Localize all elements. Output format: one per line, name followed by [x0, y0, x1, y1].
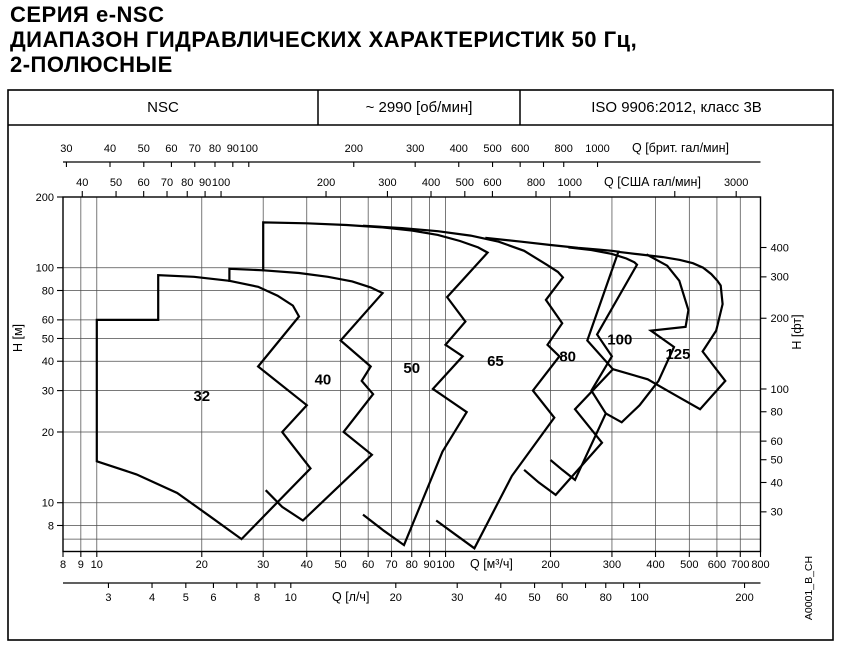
tick-label-usa-gpm: 800: [527, 177, 545, 189]
header-standard: ISO 9906:2012, класс 3В: [520, 90, 833, 125]
tick-label-imp-gpm: 80: [209, 143, 221, 155]
tick-label-ls: 30: [451, 592, 463, 604]
tick-label-imp-gpm: 600: [511, 143, 529, 155]
tick-label-h-ft: 60: [771, 436, 783, 448]
tick-label-usa-gpm: 40: [76, 177, 88, 189]
tick-label-usa-gpm: 1000: [558, 177, 582, 189]
axis-title-ls: Q [л/ч]: [332, 590, 369, 604]
tick-label-m3h: 200: [541, 559, 559, 571]
size-label-100: 100: [607, 331, 632, 348]
tick-label-imp-gpm: 300: [406, 143, 424, 155]
tick-label-m3h: 9: [78, 559, 84, 571]
tick-label-ls: 10: [285, 592, 297, 604]
header-series: NSC: [8, 90, 318, 125]
tick-label-h-ft: 300: [771, 272, 789, 284]
tick-label-imp-gpm: 100: [240, 143, 258, 155]
envelope-65: [363, 226, 563, 549]
tick-label-m3h: 70: [385, 559, 397, 571]
tick-label-imp-gpm: 50: [138, 143, 150, 155]
tick-label-usa-gpm: 50: [110, 177, 122, 189]
tick-label-m3h: 60: [362, 559, 374, 571]
tick-label-ls: 60: [556, 592, 568, 604]
tick-label-h-m: 10: [42, 498, 54, 510]
size-label-40: 40: [315, 371, 332, 388]
tick-label-imp-gpm: 500: [483, 143, 501, 155]
tick-label-imp-gpm: 90: [227, 143, 239, 155]
tick-label-ls: 4: [149, 592, 155, 604]
tick-label-ls: 40: [495, 592, 507, 604]
tick-label-imp-gpm: 70: [189, 143, 201, 155]
tick-label-ls: 20: [390, 592, 402, 604]
tick-label-ls: 80: [600, 592, 612, 604]
tick-label-usa-gpm: 500: [456, 177, 474, 189]
tick-label-usa-gpm: 200: [317, 177, 335, 189]
tick-label-h-ft: 100: [771, 384, 789, 396]
tick-label-m3h: 50: [334, 559, 346, 571]
tick-label-m3h: 10: [91, 559, 103, 571]
tick-label-imp-gpm: 800: [555, 143, 573, 155]
tick-label-ls: 200: [735, 592, 753, 604]
tick-label-m3h: 700: [731, 559, 749, 571]
tick-label-usa-gpm: 70: [161, 177, 173, 189]
tick-label-h-m: 40: [42, 356, 54, 368]
tick-label-ls: 5: [183, 592, 189, 604]
size-label-125: 125: [665, 346, 690, 363]
tick-label-imp-gpm: 1000: [585, 143, 609, 155]
envelope-40: [229, 269, 382, 521]
tick-label-ls: 3: [105, 592, 111, 604]
axis-title-h-ft: H [фт]: [790, 314, 804, 349]
size-label-65: 65: [487, 353, 504, 370]
envelope-32: [97, 275, 311, 539]
tick-label-m3h: 20: [196, 559, 208, 571]
tick-label-h-ft: 200: [771, 313, 789, 325]
envelope-50: [263, 222, 487, 545]
tick-label-usa-gpm: 100: [212, 177, 230, 189]
axis-title-m3h: Q [м³/ч]: [470, 557, 513, 571]
tick-label-imp-gpm: 40: [104, 143, 116, 155]
page-title: СЕРИЯ e-NSC ДИАПАЗОН ГИДРАВЛИЧЕСКИХ ХАРА…: [10, 2, 637, 77]
tick-label-h-m: 100: [36, 263, 54, 275]
tick-label-m3h: 600: [708, 559, 726, 571]
tick-label-h-ft: 30: [771, 507, 783, 519]
tick-label-imp-gpm: 400: [450, 143, 468, 155]
tick-label-usa-gpm: 400: [422, 177, 440, 189]
tick-label-h-ft: 80: [771, 407, 783, 419]
axis-title-usa-gpm: Q [США гал/мин]: [604, 175, 701, 189]
tick-label-ls: 100: [630, 592, 648, 604]
tick-label-h-m: 200: [36, 192, 54, 204]
tick-label-h-m: 60: [42, 315, 54, 327]
title-line-2: ДИАПАЗОН ГИДРАВЛИЧЕСКИХ ХАРАКТЕРИСТИК 50…: [10, 27, 637, 52]
tick-label-usa-gpm: 300: [378, 177, 396, 189]
tick-label-m3h: 90: [423, 559, 435, 571]
tick-label-usa-gpm: 600: [483, 177, 501, 189]
header-speed: ~ 2990 [об/мин]: [318, 90, 520, 125]
tick-label-m3h: 300: [603, 559, 621, 571]
tick-label-imp-gpm: 200: [345, 143, 363, 155]
tick-label-ls: 50: [528, 592, 540, 604]
tick-label-m3h: 100: [436, 559, 454, 571]
tick-label-h-ft: 40: [771, 477, 783, 489]
outer-frame: [8, 90, 833, 640]
size-label-32: 32: [193, 388, 210, 405]
tick-label-usa-gpm: 60: [138, 177, 150, 189]
tick-label-h-m: 20: [42, 427, 54, 439]
tick-label-usa-gpm: 3000: [724, 177, 748, 189]
tick-label-h-ft: 50: [771, 455, 783, 467]
size-label-80: 80: [559, 348, 576, 365]
tick-label-usa-gpm: 80: [181, 177, 193, 189]
tick-label-m3h: 40: [301, 559, 313, 571]
tick-label-h-m: 50: [42, 333, 54, 345]
tick-label-h-m: 80: [42, 285, 54, 297]
watermark: A0001_B_CH: [803, 556, 815, 620]
tick-label-m3h: 80: [406, 559, 418, 571]
axis-title-h-m: H [м]: [11, 324, 25, 352]
tick-label-h-m: 30: [42, 385, 54, 397]
size-label-50: 50: [403, 360, 420, 377]
tick-label-ls: 6: [210, 592, 216, 604]
title-line-3: 2-ПОЛЮСНЫЕ: [10, 52, 637, 77]
tick-label-m3h: 400: [646, 559, 664, 571]
tick-label-ls: 8: [254, 592, 260, 604]
tick-label-m3h: 8: [60, 559, 66, 571]
tick-label-m3h: 800: [751, 559, 769, 571]
tick-label-imp-gpm: 30: [60, 143, 72, 155]
tick-label-m3h: 500: [680, 559, 698, 571]
tick-label-m3h: 30: [257, 559, 269, 571]
tick-label-imp-gpm: 60: [165, 143, 177, 155]
page: СЕРИЯ e-NSC ДИАПАЗОН ГИДРАВЛИЧЕСКИХ ХАРА…: [0, 0, 841, 648]
tick-label-h-ft: 400: [771, 242, 789, 254]
tick-label-usa-gpm: 90: [199, 177, 211, 189]
tick-label-h-m: 8: [48, 520, 54, 532]
title-line-1: СЕРИЯ e-NSC: [10, 2, 637, 27]
axis-title-imp-gpm: Q [брит. гал/мин]: [632, 141, 729, 155]
